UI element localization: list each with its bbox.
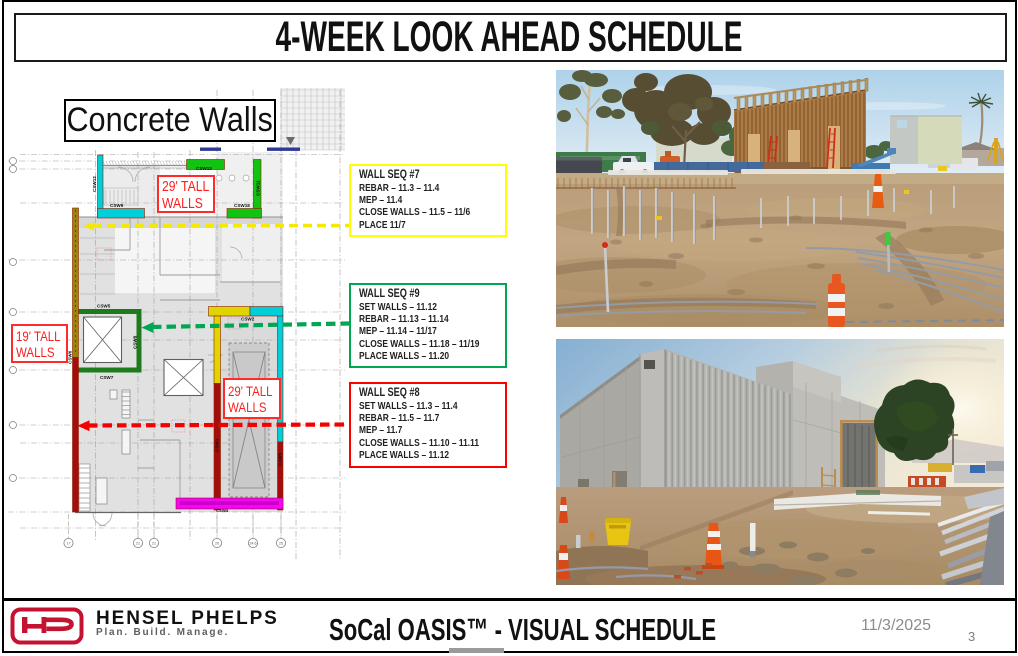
svg-text:CSW12: CSW12 — [92, 176, 97, 192]
svg-text:25: 25 — [279, 542, 283, 546]
svg-text:CSW5: CSW5 — [97, 304, 111, 309]
svg-text:CSW11: CSW11 — [256, 180, 261, 196]
svg-text:24.6: 24.6 — [250, 542, 257, 546]
svg-text:CSW8: CSW8 — [133, 335, 138, 349]
svg-text:CSW4: CSW4 — [216, 508, 229, 513]
svg-text:CSW3: CSW3 — [278, 452, 283, 466]
svg-text:21: 21 — [136, 542, 140, 546]
svg-text:20: 20 — [215, 542, 219, 546]
svg-text:21: 21 — [152, 542, 156, 546]
svg-text:CSW2: CSW2 — [241, 317, 255, 322]
svg-text:CSW1: CSW1 — [215, 438, 220, 452]
svg-text:CSW18: CSW18 — [234, 203, 250, 208]
svg-text:17: 17 — [67, 542, 71, 546]
svg-text:CSW9: CSW9 — [110, 203, 124, 208]
svg-text:CSW13: CSW13 — [196, 166, 212, 171]
svg-text:CSW7: CSW7 — [100, 375, 114, 380]
